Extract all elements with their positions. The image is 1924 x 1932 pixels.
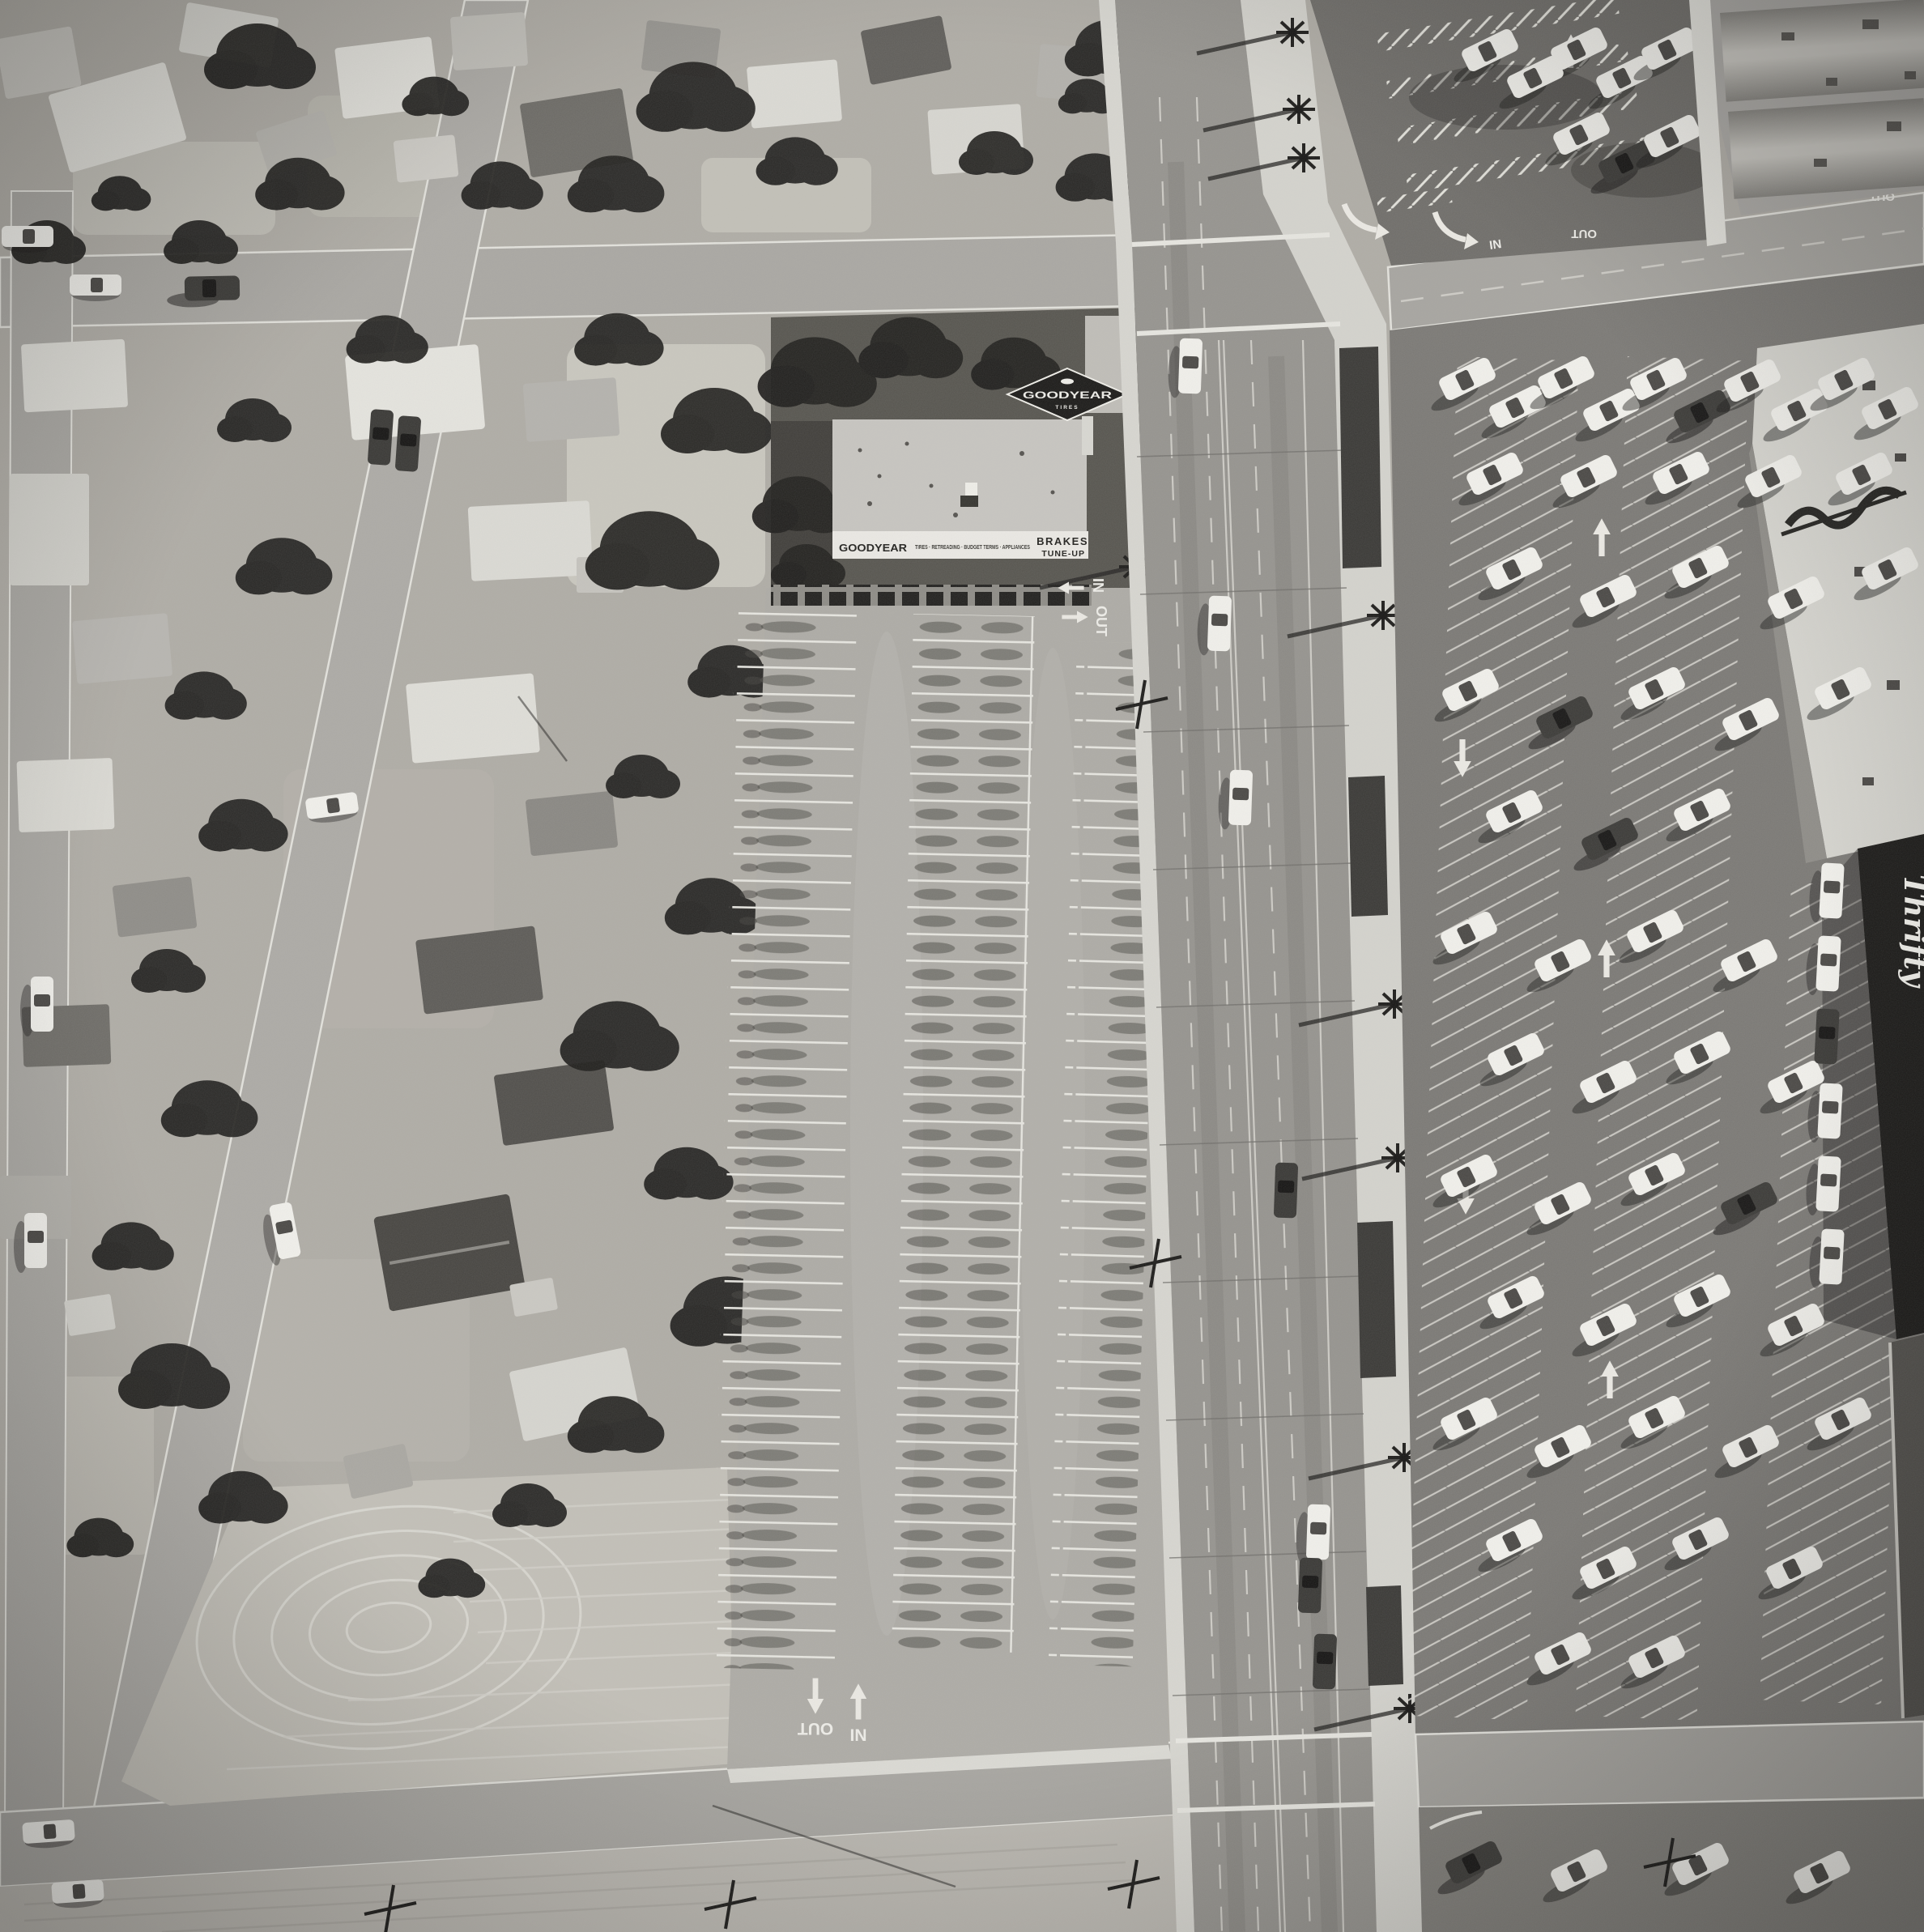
vignette <box>0 0 1924 1932</box>
photo-scene: GOODYEAR TIRES · RETREADING · BUDGET TER… <box>0 0 1924 1932</box>
aerial-photograph: GOODYEAR TIRES · RETREADING · BUDGET TER… <box>0 0 1924 1932</box>
